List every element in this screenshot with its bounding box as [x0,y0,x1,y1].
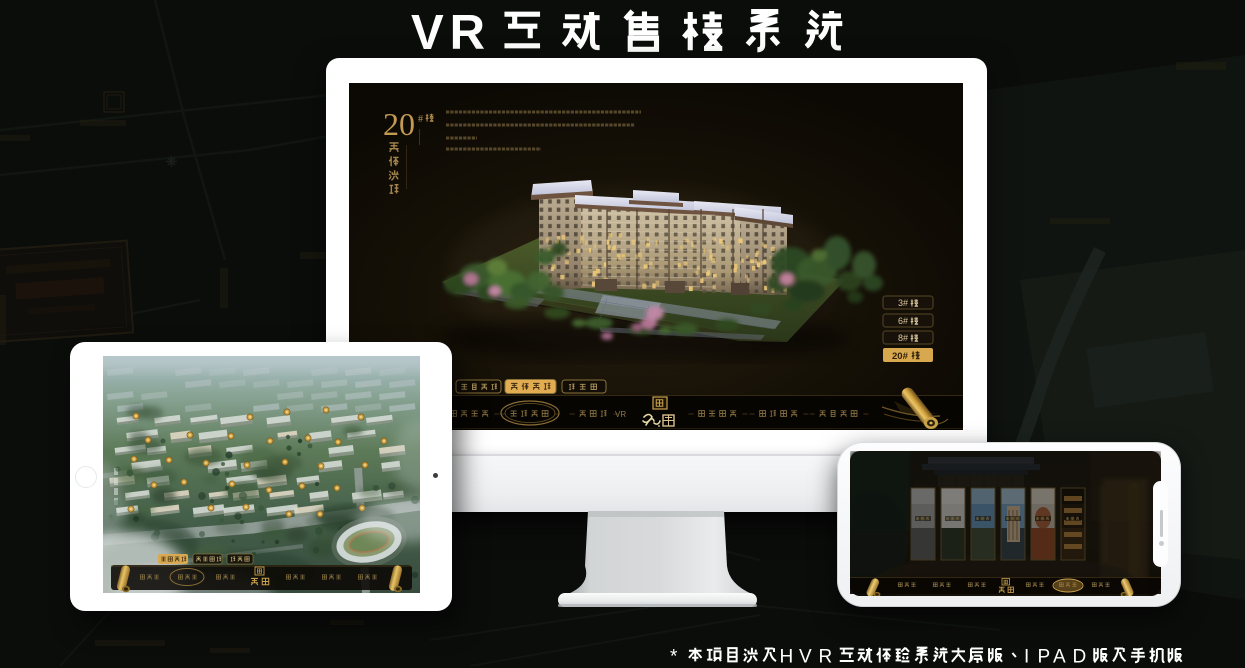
svg-text:6#: 6# [898,316,908,326]
svg-text:20: 20 [383,106,415,142]
svg-text:VR: VR [615,410,626,419]
svg-text:I: I [1024,647,1029,668]
svg-text:*: * [670,647,678,668]
svg-text:R: R [819,647,833,668]
svg-text:8#: 8# [898,333,908,343]
svg-text:VR: VR [411,6,491,60]
svg-text:H: H [780,647,794,668]
svg-text:20#: 20# [892,351,909,362]
svg-text:P: P [1038,647,1051,668]
svg-text:D: D [1073,647,1087,668]
svg-text:3#: 3# [898,298,908,308]
svg-text:A: A [1053,647,1066,668]
svg-text:V: V [799,647,812,668]
svg-text:#: # [418,114,423,125]
